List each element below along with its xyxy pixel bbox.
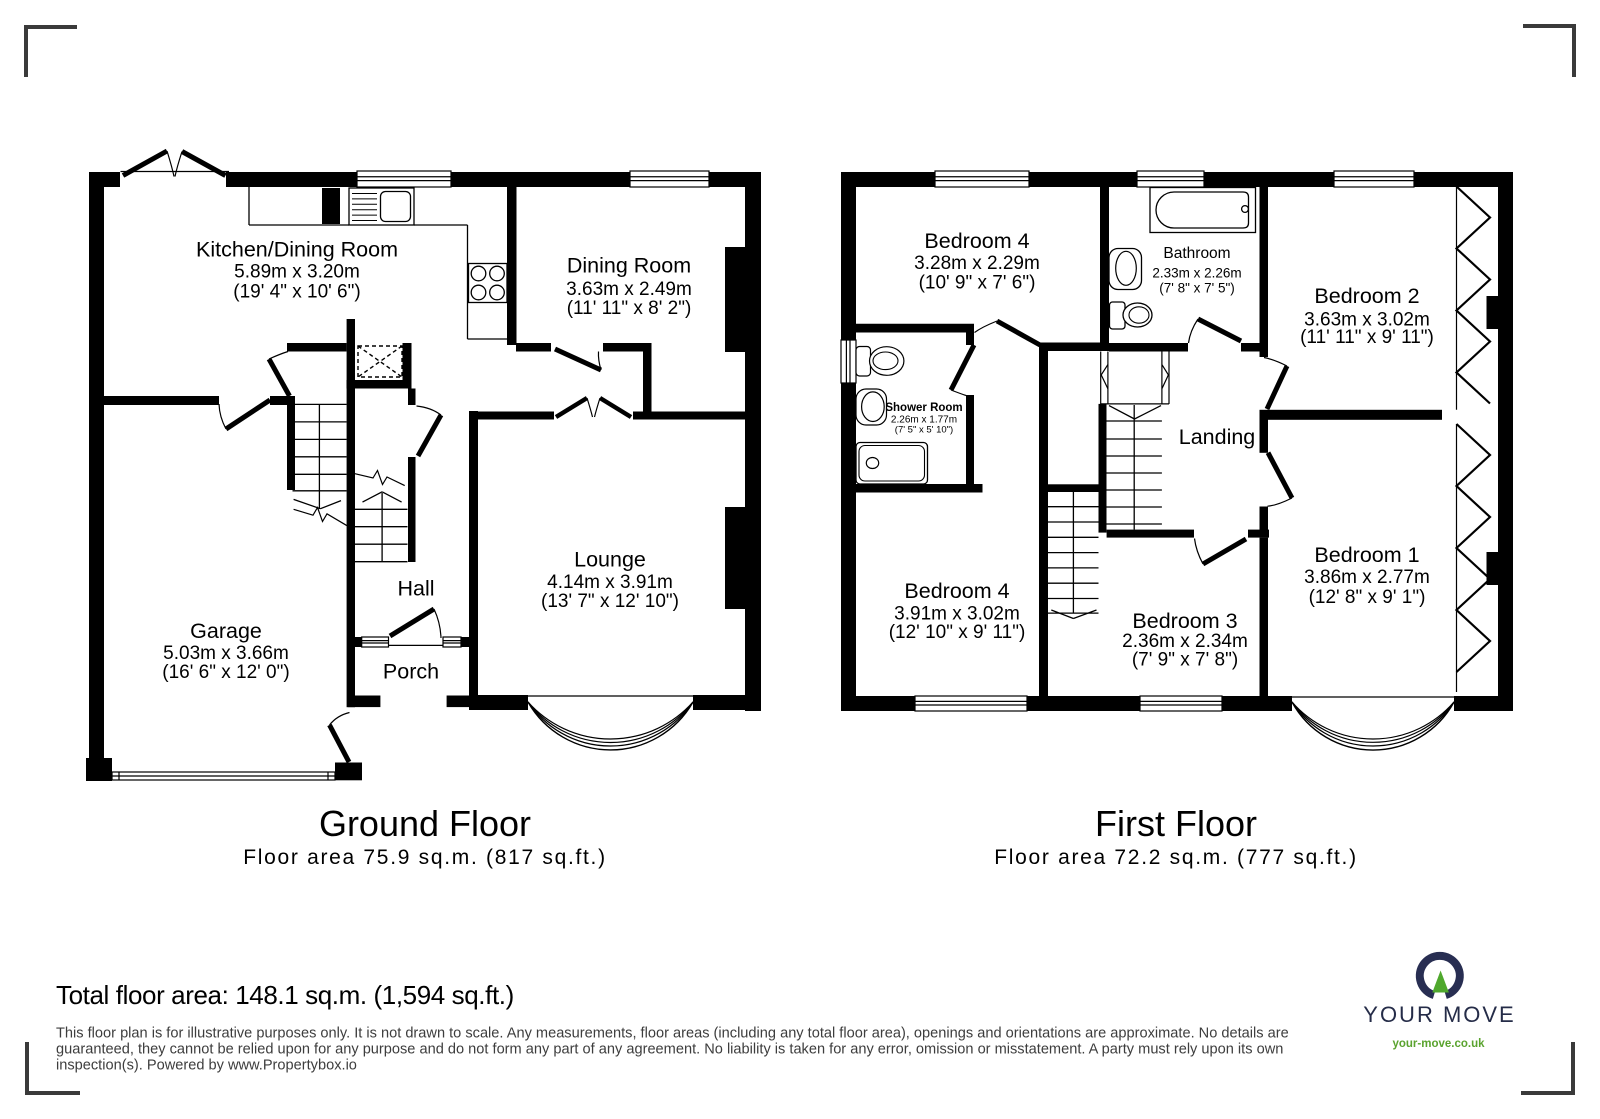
svg-text:Garage: Garage	[190, 619, 262, 643]
svg-text:3.86m x 2.77m: 3.86m x 2.77m	[1304, 567, 1430, 588]
svg-text:your-move.co.uk: your-move.co.uk	[1392, 1038, 1485, 1050]
svg-text:(12' 10" x 9' 11"): (12' 10" x 9' 11")	[889, 622, 1026, 643]
svg-text:(7' 8" x 7' 5"): (7' 8" x 7' 5")	[1159, 281, 1235, 296]
svg-text:(10' 9" x 7' 6"): (10' 9" x 7' 6")	[919, 273, 1036, 294]
svg-text:Bedroom 4: Bedroom 4	[904, 579, 1009, 603]
svg-text:inspection(s). Powered by www.: inspection(s). Powered by www.Propertybo…	[56, 1058, 357, 1074]
svg-text:(7' 5" x 5' 10"): (7' 5" x 5' 10")	[895, 425, 953, 436]
svg-text:3.63m x 2.49m: 3.63m x 2.49m	[566, 279, 692, 300]
svg-text:(11' 11" x 8' 2"): (11' 11" x 8' 2")	[567, 298, 692, 319]
svg-text:Lounge: Lounge	[574, 548, 646, 572]
svg-text:5.89m x 3.20m: 5.89m x 3.20m	[234, 262, 360, 283]
svg-text:Shower Room: Shower Room	[885, 402, 962, 414]
svg-text:Floor area 72.2 sq.m. (777 sq.: Floor area 72.2 sq.m. (777 sq.ft.)	[994, 846, 1358, 869]
svg-text:Bedroom 4: Bedroom 4	[924, 229, 1029, 253]
svg-text:4.14m x 3.91m: 4.14m x 3.91m	[547, 572, 673, 593]
svg-text:This floor plan is for illustr: This floor plan is for illustrative purp…	[56, 1026, 1289, 1042]
svg-text:Bathroom: Bathroom	[1163, 245, 1230, 262]
svg-text:(13' 7" x 12' 10"): (13' 7" x 12' 10")	[541, 591, 679, 612]
svg-text:(11' 11" x 9' 11"): (11' 11" x 9' 11")	[1300, 327, 1434, 348]
svg-text:Floor area 75.9 sq.m. (817 sq.: Floor area 75.9 sq.m. (817 sq.ft.)	[243, 846, 607, 869]
svg-text:Ground Floor: Ground Floor	[319, 803, 531, 844]
svg-text:(16' 6" x 12' 0"): (16' 6" x 12' 0")	[162, 662, 289, 683]
svg-text:Bedroom 1: Bedroom 1	[1314, 543, 1419, 567]
svg-text:3.28m x 2.29m: 3.28m x 2.29m	[914, 253, 1040, 274]
svg-text:Hall: Hall	[397, 577, 434, 601]
svg-text:Porch: Porch	[383, 660, 439, 684]
svg-text:Total floor area: 148.1 sq.m.: Total floor area: 148.1 sq.m. (1,594 sq.…	[56, 980, 514, 1010]
svg-text:Dining Room: Dining Room	[567, 254, 691, 278]
svg-text:First Floor: First Floor	[1095, 803, 1257, 844]
svg-text:Kitchen/Dining Room: Kitchen/Dining Room	[196, 238, 398, 262]
svg-text:(12' 8" x 9' 1"): (12' 8" x 9' 1")	[1309, 587, 1426, 608]
svg-text:(7' 9" x 7' 8"): (7' 9" x 7' 8")	[1132, 650, 1238, 671]
svg-text:5.03m x 3.66m: 5.03m x 3.66m	[163, 643, 289, 664]
svg-text:Bedroom 2: Bedroom 2	[1314, 284, 1419, 308]
svg-text:2.33m x 2.26m: 2.33m x 2.26m	[1152, 266, 1241, 281]
svg-text:Bedroom 3: Bedroom 3	[1132, 609, 1237, 633]
svg-text:guaranteed, they cannot be rel: guaranteed, they cannot be relied upon f…	[56, 1042, 1283, 1058]
svg-text:YOUR MOVE: YOUR MOVE	[1363, 1002, 1515, 1027]
svg-text:Landing: Landing	[1179, 425, 1256, 449]
svg-text:(19' 4" x 10' 6"): (19' 4" x 10' 6")	[233, 282, 360, 303]
